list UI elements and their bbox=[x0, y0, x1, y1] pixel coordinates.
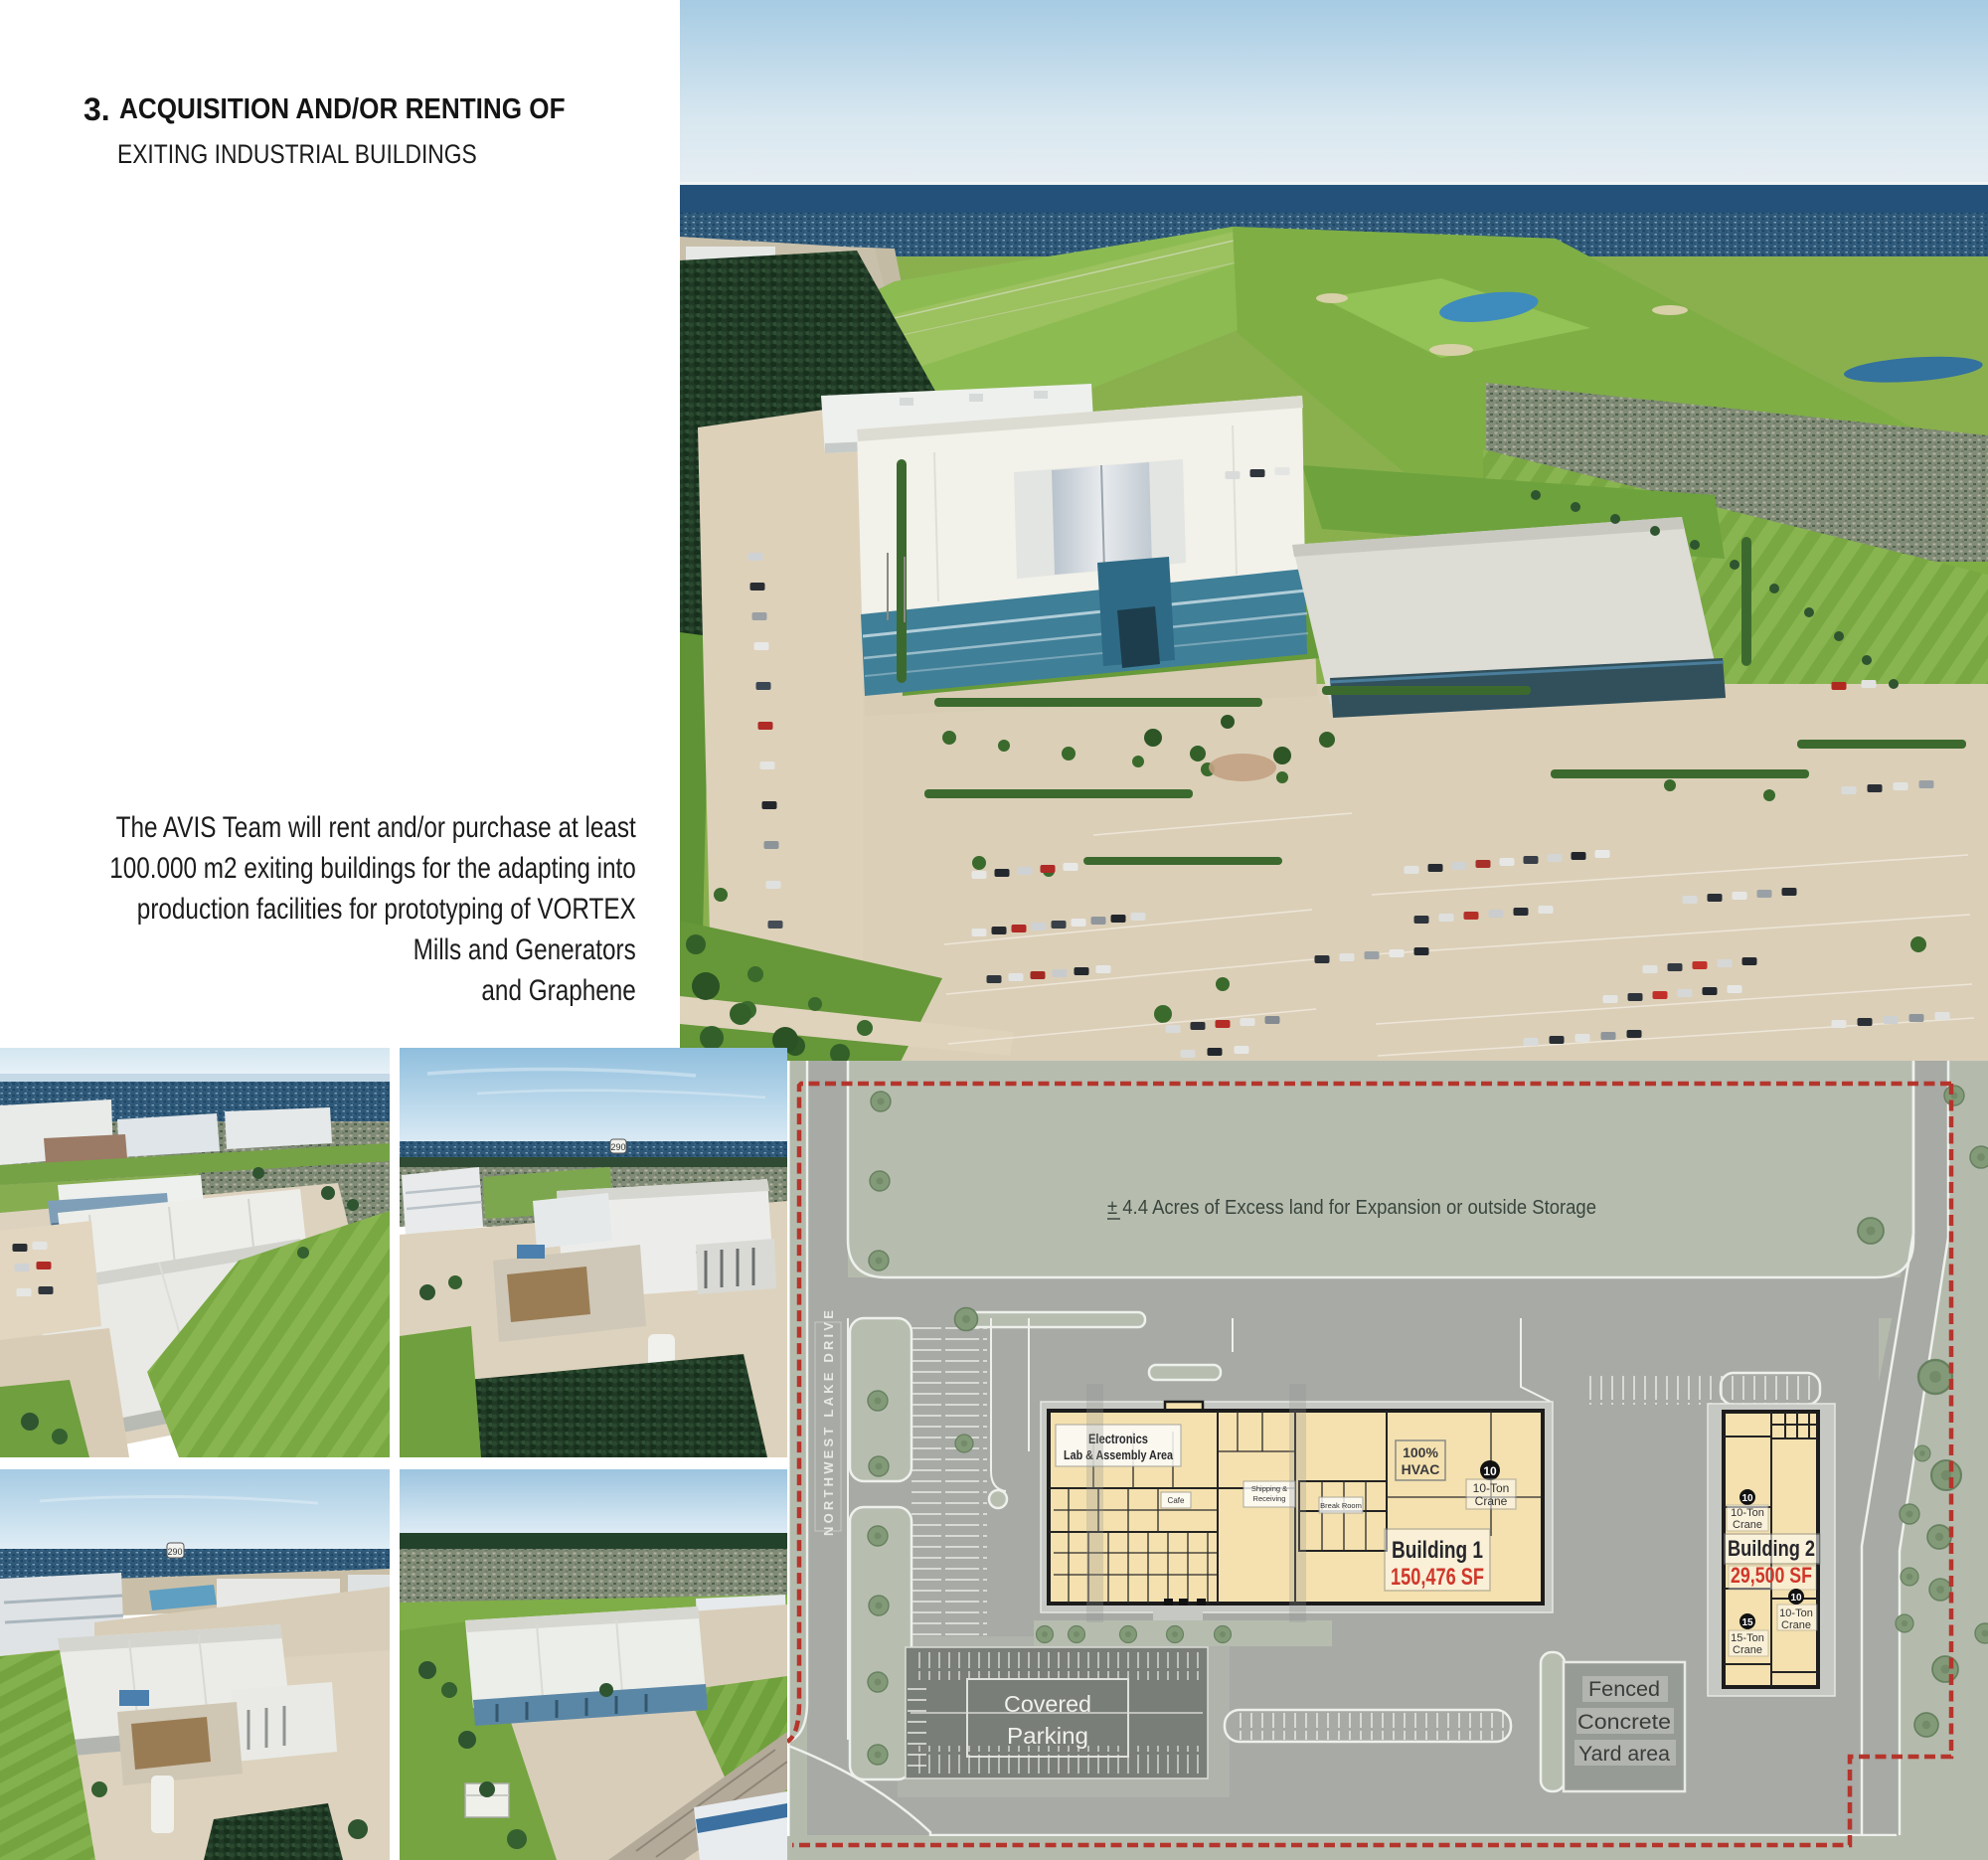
svg-text:10-Ton: 10-Ton bbox=[1473, 1481, 1510, 1495]
svg-text:290: 290 bbox=[610, 1142, 625, 1152]
svg-text:± 4.4 Acres of Excess land for: ± 4.4 Acres of Excess land for Expansion… bbox=[1107, 1197, 1596, 1219]
svg-text:10: 10 bbox=[1741, 1493, 1753, 1504]
svg-text:Shipping &: Shipping & bbox=[1251, 1484, 1287, 1493]
svg-text:290: 290 bbox=[167, 1547, 182, 1557]
svg-text:Crane: Crane bbox=[1733, 1519, 1762, 1531]
svg-text:15: 15 bbox=[1741, 1617, 1753, 1628]
svg-text:100%: 100% bbox=[1403, 1444, 1438, 1460]
svg-text:Building 1: Building 1 bbox=[1392, 1537, 1483, 1564]
svg-text:10-Ton: 10-Ton bbox=[1779, 1607, 1813, 1619]
svg-text:Crane: Crane bbox=[1733, 1644, 1762, 1656]
svg-text:HVAC: HVAC bbox=[1402, 1461, 1440, 1477]
svg-text:10-Ton: 10-Ton bbox=[1731, 1507, 1764, 1519]
svg-text:10: 10 bbox=[1790, 1593, 1802, 1604]
svg-text:NORTHWEST LAKE DRIVE: NORTHWEST LAKE DRIVE bbox=[821, 1307, 836, 1536]
svg-text:Cafe: Cafe bbox=[1168, 1496, 1185, 1505]
svg-text:Break Room: Break Room bbox=[1320, 1501, 1362, 1510]
svg-text:10: 10 bbox=[1483, 1464, 1497, 1478]
svg-text:Yard area: Yard area bbox=[1578, 1743, 1670, 1766]
svg-text:Parking: Parking bbox=[1007, 1723, 1088, 1749]
svg-text:Lab & Assembly Area: Lab & Assembly Area bbox=[1064, 1447, 1174, 1462]
svg-text:Covered: Covered bbox=[1004, 1691, 1091, 1717]
svg-text:Crane: Crane bbox=[1781, 1619, 1811, 1631]
svg-text:Building 2: Building 2 bbox=[1728, 1536, 1815, 1561]
svg-text:Crane: Crane bbox=[1475, 1494, 1508, 1508]
svg-text:15-Ton: 15-Ton bbox=[1731, 1632, 1764, 1644]
svg-text:150,476 SF: 150,476 SF bbox=[1391, 1564, 1484, 1591]
svg-text:Fenced: Fenced bbox=[1588, 1678, 1660, 1701]
svg-text:29,500 SF: 29,500 SF bbox=[1731, 1563, 1812, 1588]
svg-text:Concrete: Concrete bbox=[1577, 1711, 1671, 1734]
svg-text:Receiving: Receiving bbox=[1253, 1494, 1286, 1503]
